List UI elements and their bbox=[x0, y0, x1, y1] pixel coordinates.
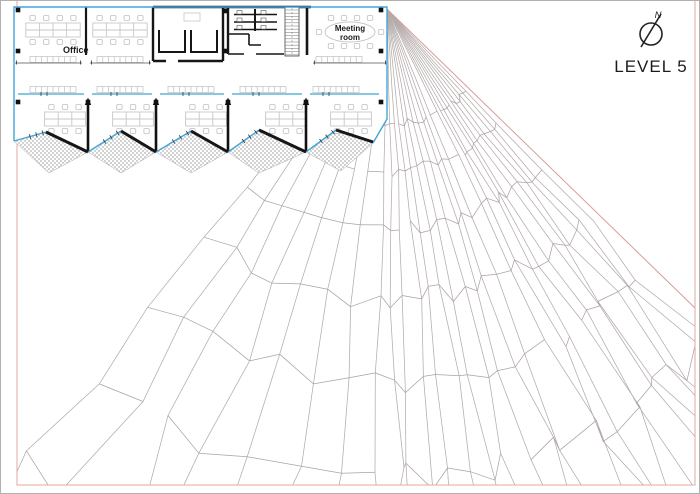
level-title: LEVEL 5 bbox=[614, 57, 687, 76]
north-label: N bbox=[655, 10, 662, 21]
meeting-room-label: Meeting bbox=[335, 24, 365, 33]
meeting-room-label-2: room bbox=[340, 33, 360, 42]
drawing-sheet: Office Meeting room N LEVEL 5 bbox=[0, 0, 700, 494]
floor-plan: Office Meeting room bbox=[14, 6, 387, 173]
stair-strip bbox=[285, 7, 299, 56]
plan-svg: Office Meeting room N LEVEL 5 bbox=[1, 1, 699, 493]
lobby-table bbox=[184, 13, 200, 21]
office-label: Office bbox=[63, 45, 89, 55]
red-sightline bbox=[387, 9, 695, 308]
north-arrow: N bbox=[640, 10, 662, 47]
